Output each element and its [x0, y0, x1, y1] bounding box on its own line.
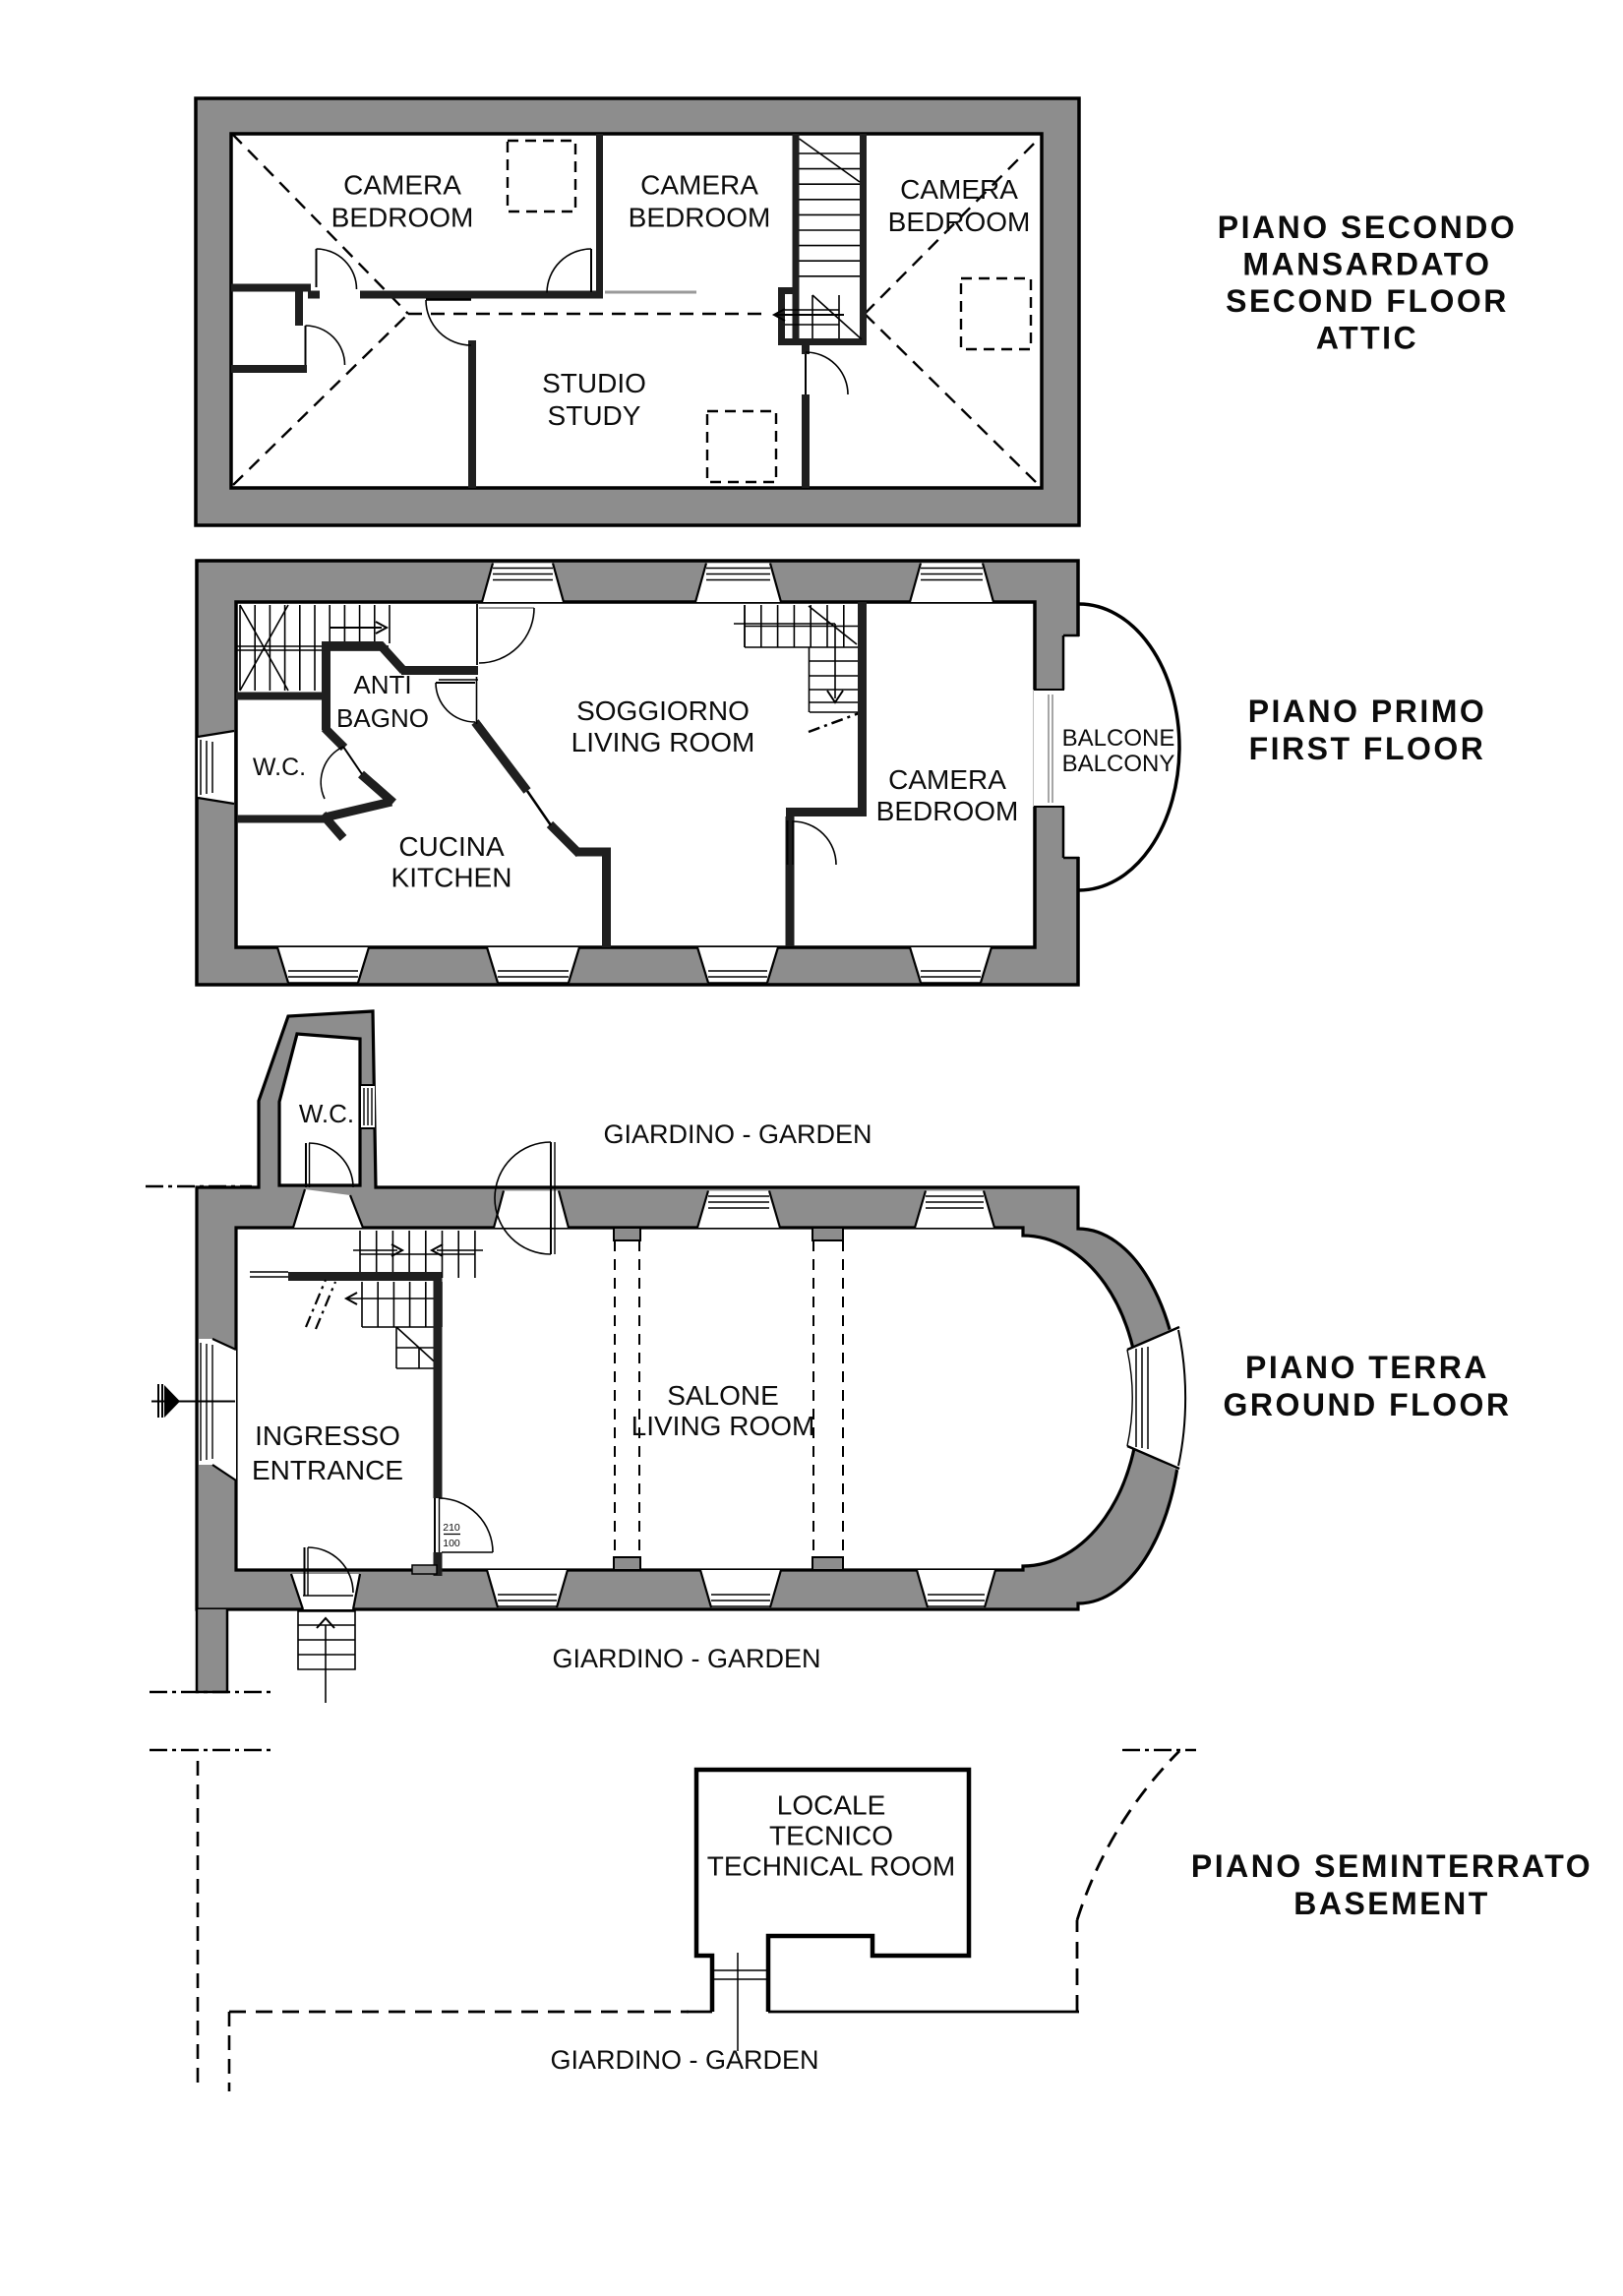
svg-text:BEDROOM: BEDROOM: [888, 207, 1031, 237]
svg-text:SOGGIORNO: SOGGIORNO: [576, 695, 750, 726]
svg-text:ENTRANCE: ENTRANCE: [252, 1455, 403, 1485]
svg-text:LIVING ROOM: LIVING ROOM: [631, 1411, 815, 1441]
svg-text:BALCONY: BALCONY: [1062, 751, 1175, 777]
svg-text:ANTI: ANTI: [353, 670, 411, 699]
svg-text:BEDROOM: BEDROOM: [876, 796, 1019, 826]
svg-text:LOCALE: LOCALE: [777, 1790, 886, 1821]
svg-text:100: 100: [443, 1538, 460, 1549]
svg-text:PIANO PRIMO: PIANO PRIMO: [1248, 694, 1487, 729]
svg-text:PIANO TERRA: PIANO TERRA: [1245, 1350, 1489, 1385]
svg-text:STUDIO: STUDIO: [542, 368, 646, 398]
svg-text:LIVING ROOM: LIVING ROOM: [571, 727, 755, 757]
svg-text:BEDROOM: BEDROOM: [331, 203, 474, 233]
svg-text:CUCINA: CUCINA: [398, 831, 505, 862]
svg-text:ATTIC: ATTIC: [1316, 321, 1418, 356]
svg-text:GIARDINO - GARDEN: GIARDINO - GARDEN: [603, 1119, 872, 1149]
svg-text:PIANO SEMINTERRATO: PIANO SEMINTERRATO: [1191, 1848, 1593, 1884]
svg-text:CAMERA: CAMERA: [900, 174, 1018, 205]
svg-text:CAMERA: CAMERA: [343, 170, 461, 201]
svg-text:FIRST FLOOR: FIRST FLOOR: [1249, 731, 1486, 766]
svg-text:SALONE: SALONE: [667, 1380, 779, 1411]
svg-text:GIARDINO - GARDEN: GIARDINO - GARDEN: [552, 1644, 820, 1673]
svg-text:W.C.: W.C.: [253, 754, 306, 781]
svg-text:CAMERA: CAMERA: [640, 170, 758, 201]
svg-text:GIARDINO - GARDEN: GIARDINO - GARDEN: [550, 2045, 818, 2075]
svg-text:STUDY: STUDY: [548, 400, 641, 431]
svg-text:W.C.: W.C.: [299, 1099, 354, 1128]
svg-text:MANSARDATO: MANSARDATO: [1242, 247, 1491, 282]
svg-text:GROUND FLOOR: GROUND FLOOR: [1223, 1387, 1511, 1422]
svg-text:SECOND FLOOR: SECOND FLOOR: [1226, 283, 1509, 319]
svg-text:PIANO SECONDO: PIANO SECONDO: [1218, 210, 1518, 245]
svg-text:KITCHEN: KITCHEN: [391, 863, 512, 893]
svg-text:210: 210: [443, 1522, 460, 1534]
svg-text:CAMERA: CAMERA: [888, 764, 1006, 795]
svg-text:INGRESSO: INGRESSO: [255, 1420, 400, 1451]
svg-text:TECHNICAL ROOM: TECHNICAL ROOM: [707, 1851, 956, 1882]
svg-text:BEDROOM: BEDROOM: [629, 203, 771, 233]
svg-text:TECNICO: TECNICO: [769, 1821, 893, 1851]
svg-text:BALCONE: BALCONE: [1062, 725, 1175, 752]
svg-text:BAGNO: BAGNO: [336, 703, 429, 733]
svg-text:BASEMENT: BASEMENT: [1293, 1886, 1490, 1921]
